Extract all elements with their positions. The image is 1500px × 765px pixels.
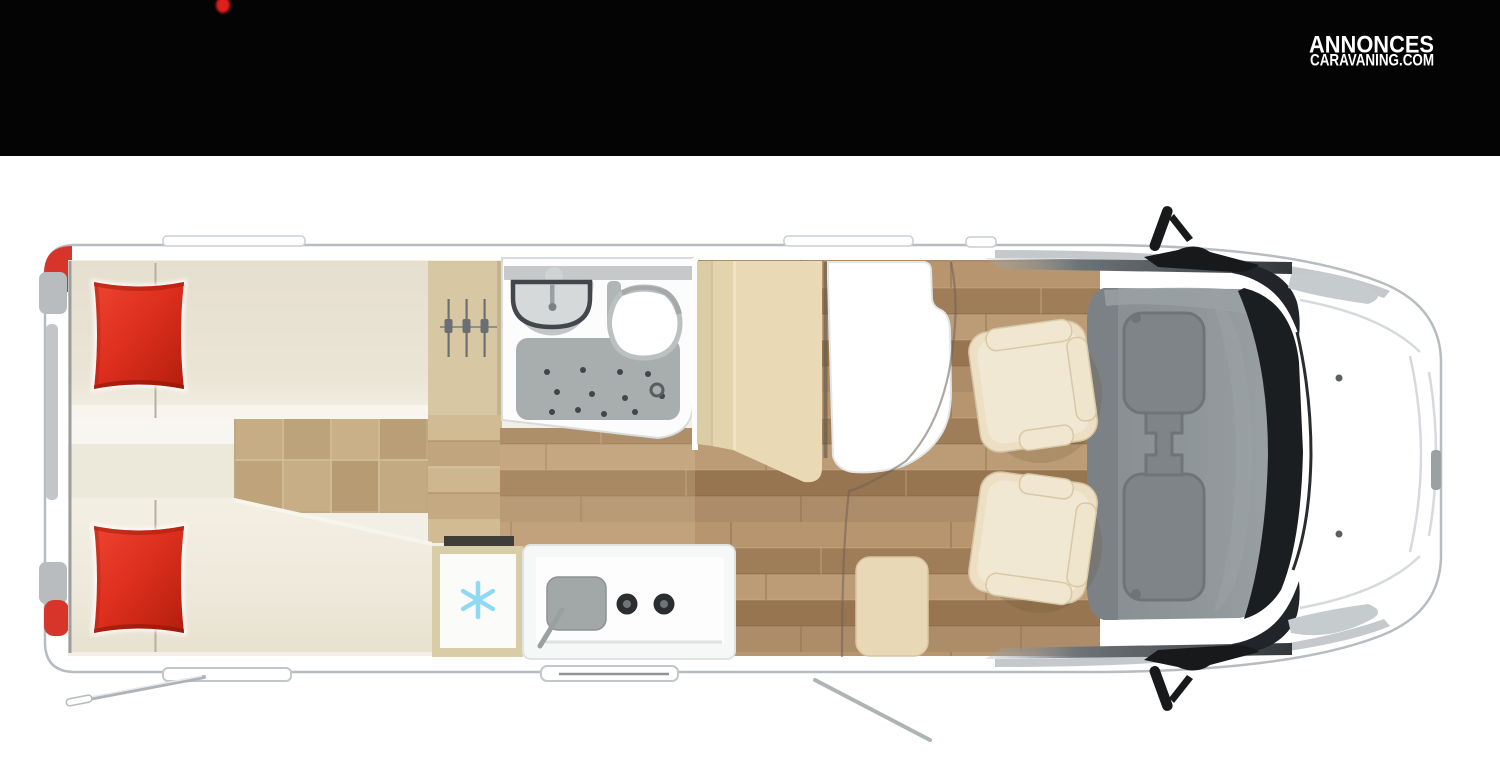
svg-text:CARAVANING.COM: CARAVANING.COM [1310,52,1434,70]
